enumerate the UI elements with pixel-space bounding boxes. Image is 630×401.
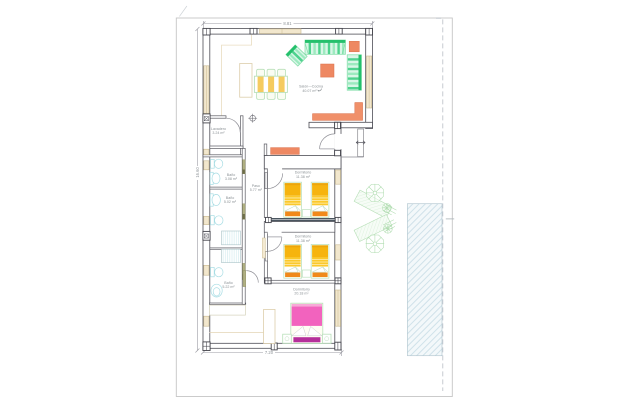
- svg-text:11.38 m²: 11.38 m²: [296, 239, 311, 243]
- svg-text:3.24 m²: 3.24 m²: [212, 131, 225, 135]
- svg-text:8.81: 8.81: [283, 21, 292, 26]
- svg-text:16.60: 16.60: [195, 166, 200, 177]
- svg-text:7.20: 7.20: [265, 350, 274, 355]
- svg-text:3.08 m²: 3.08 m²: [225, 177, 238, 181]
- svg-text:20.18 m²: 20.18 m²: [294, 292, 309, 296]
- svg-text:5.22 m²: 5.22 m²: [222, 285, 235, 289]
- svg-text:40.07 m²: 40.07 m²: [302, 89, 317, 93]
- svg-text:11.38 m²: 11.38 m²: [296, 175, 311, 179]
- svg-text:5.77 m²: 5.77 m²: [250, 188, 263, 192]
- svg-text:5.02 m²: 5.02 m²: [224, 200, 237, 204]
